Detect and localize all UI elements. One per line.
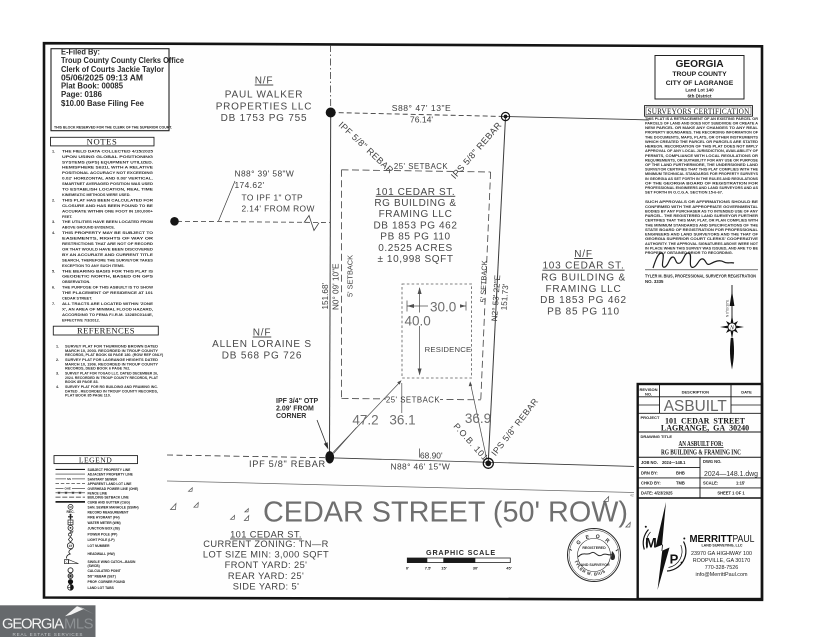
- svg-text:GEORGIA: GEORGIA: [2, 617, 64, 633]
- svg-text:UPON USING GLOBAL POSITIONING: UPON USING GLOBAL POSITIONING: [62, 155, 153, 159]
- svg-text:REGISTERED: REGISTERED: [582, 546, 606, 550]
- svg-text:15': 15': [441, 566, 446, 571]
- svg-text:6th District: 6th District: [688, 93, 712, 98]
- svg-text:DESCRIPTION: DESCRIPTION: [682, 390, 709, 395]
- svg-text:76.14': 76.14': [410, 115, 434, 125]
- svg-text:4.: 4.: [52, 231, 55, 235]
- svg-text:ALL TRACTS ARE LOCATED WITHIN: ALL TRACTS ARE LOCATED WITHIN 'ZONE: [62, 302, 154, 306]
- svg-text:ALLEN LORAINE S: ALLEN LORAINE S: [212, 339, 312, 350]
- svg-text:PLAT BOOK 85 PAGE 110.: PLAT BOOK 85 PAGE 110.: [65, 394, 111, 398]
- svg-text:7.5': 7.5': [425, 566, 432, 571]
- svg-text:151.68': 151.68': [321, 282, 330, 309]
- svg-text:DATE: 4/23/2025: DATE: 4/23/2025: [641, 491, 673, 496]
- svg-text:OVERHEAD POWER LINE (OHE): OVERHEAD POWER LINE (OHE): [88, 487, 139, 491]
- svg-text:68.90': 68.90': [420, 450, 443, 460]
- svg-text:SUBJECT PROPERTY LINE: SUBJECT PROPERTY LINE: [88, 468, 132, 472]
- svg-text:EFFECTIVE 7/3/2012.: EFFECTIVE 7/3/2012.: [62, 318, 100, 322]
- svg-text:HEADWALL (HW): HEADWALL (HW): [88, 552, 115, 556]
- svg-text:± 10,998 SQFT: ± 10,998 SQFT: [377, 254, 453, 265]
- svg-text:OBSERVATION.: OBSERVATION.: [62, 280, 90, 284]
- svg-text:30': 30': [473, 566, 478, 571]
- svg-text:THIS PROPERTY MAY BE SUBJECT T: THIS PROPERTY MAY BE SUBJECT TO: [62, 231, 153, 235]
- svg-text:ROOPVILLE, GA 30170: ROOPVILLE, GA 30170: [693, 558, 751, 564]
- svg-text:TO IPF 1" OTP: TO IPF 1" OTP: [242, 193, 304, 203]
- svg-text:FRONT YARD: 25': FRONT YARD: 25': [225, 560, 308, 570]
- svg-text:PROJECT: PROJECT: [641, 415, 660, 420]
- svg-text:ACCORDING TO FEMA F.I.R.M. 132: ACCORDING TO FEMA F.I.R.M. 13285C0144E,: [62, 313, 153, 317]
- svg-text:CHKD BY:: CHKD BY:: [641, 481, 661, 486]
- svg-text:DB 1853 PG 462: DB 1853 PG 462: [540, 295, 627, 306]
- svg-text:SIDE YARD: 5': SIDE YARD: 5': [233, 582, 300, 592]
- svg-text:30.0: 30.0: [430, 300, 456, 315]
- svg-text:RESIDENCE: RESIDENCE: [425, 345, 472, 354]
- svg-text:RECORDS, DEED BOOK 6 PAGE 762.: RECORDS, DEED BOOK 6 PAGE 762.: [65, 367, 130, 371]
- svg-text:Land Lot 140: Land Lot 140: [685, 88, 714, 93]
- svg-text:0': 0': [406, 566, 409, 571]
- svg-text:ASBUILT: ASBUILT: [664, 398, 728, 415]
- svg-text:REAR YARD: 25': REAR YARD: 25': [228, 571, 304, 581]
- svg-text:4.: 4.: [56, 385, 59, 389]
- svg-text:LEGEND: LEGEND: [79, 455, 112, 464]
- svg-text:174.62': 174.62': [235, 180, 265, 190]
- svg-text:2.09' FROM: 2.09' FROM: [276, 406, 314, 413]
- svg-text:ADJACENT PROPERTY LINE: ADJACENT PROPERTY LINE: [88, 473, 134, 477]
- svg-text:TMB: TMB: [676, 481, 685, 486]
- svg-text:JOB NO.: JOB NO.: [641, 460, 658, 465]
- svg-text:$10.00 Base Filing Fee: $10.00 Base Filing Fee: [61, 99, 145, 108]
- svg-text:N/F: N/F: [253, 328, 272, 339]
- svg-text:2.: 2.: [56, 358, 59, 362]
- svg-text:RECORDS, PLAT BOOK 68 PAGE 180: RECORDS, PLAT BOOK 68 PAGE 180. (ROW REF…: [65, 353, 164, 357]
- svg-text:0.2525 ACRES: 0.2525 ACRES: [378, 243, 452, 254]
- svg-text:DATE: DATE: [741, 390, 752, 395]
- svg-text:CITY OF LAGRANGE: CITY OF LAGRANGE: [666, 80, 734, 87]
- svg-text:DB 568 PG 726: DB 568 PG 726: [222, 350, 302, 361]
- svg-text:CEDAR STREET (50' ROW): CEDAR STREET (50' ROW): [263, 497, 628, 529]
- svg-text:N88° 46' 15"W: N88° 46' 15"W: [391, 462, 451, 472]
- svg-text:770-328-7526: 770-328-7526: [705, 565, 739, 571]
- svg-text:P: P: [670, 552, 679, 567]
- svg-text:ABOVE GROUND EVIDENCE.: ABOVE GROUND EVIDENCE.: [62, 226, 115, 230]
- svg-text:1:15': 1:15': [736, 481, 745, 486]
- svg-text:2.14' FROM ROW: 2.14' FROM ROW: [242, 204, 315, 214]
- svg-text:45': 45': [506, 566, 511, 571]
- svg-text:DRAWING TITLE: DRAWING TITLE: [641, 434, 673, 439]
- svg-text:0.02' HORIZONTAL AND 0.08' VER: 0.02' HORIZONTAL AND 0.08' VERTICAL.: [62, 177, 153, 181]
- svg-text:RECORD MEASUREMENT: RECORD MEASUREMENT: [88, 510, 129, 514]
- svg-text:DWG NO.: DWG NO.: [703, 459, 721, 464]
- svg-text:PB 85 PG 110: PB 85 PG 110: [547, 307, 620, 318]
- svg-text:(SWCB): (SWCB): [88, 564, 100, 568]
- svg-text:25' SETBACK: 25' SETBACK: [386, 396, 441, 405]
- svg-text:S88° 47' 13"E: S88° 47' 13"E: [392, 103, 452, 113]
- svg-text:36.9: 36.9: [465, 411, 491, 426]
- svg-text:CURRENT ZONING: TN—R: CURRENT ZONING: TN—R: [203, 539, 328, 549]
- svg-text:SYSTEMS (GPS) EQUIPMENT UTILIZ: SYSTEMS (GPS) EQUIPMENT UTILIZED.: [62, 160, 153, 164]
- svg-text:CLOSURE AND HAS BEEN FOUND TO: CLOSURE AND HAS BEEN FOUND TO BE: [62, 204, 154, 208]
- svg-text:101 CEDAR ST.: 101 CEDAR ST.: [376, 187, 456, 198]
- svg-text:FIRE HYDRANT (FH): FIRE HYDRANT (FH): [88, 516, 120, 520]
- svg-text:47.2: 47.2: [352, 413, 378, 428]
- svg-text:IPF 3/4" OTP: IPF 3/4" OTP: [276, 398, 319, 405]
- svg-text:SS: SS: [67, 477, 71, 481]
- svg-text:PROP. CORNER FOUND: PROP. CORNER FOUND: [88, 580, 126, 584]
- svg-text:POSITIONAL ACCURACY NOT EXCEED: POSITIONAL ACCURACY NOT EXCEEDING: [62, 171, 153, 175]
- svg-text:N/F: N/F: [255, 76, 274, 87]
- svg-text:N88° 39' 58"W: N88° 39' 58"W: [235, 169, 295, 179]
- svg-text:BUILDING SETBACK LINE: BUILDING SETBACK LINE: [88, 496, 130, 500]
- svg-text:REAL ESTATE SERVICES: REAL ESTATE SERVICES: [13, 632, 83, 637]
- svg-text:SHEET 1 OF 1: SHEET 1 OF 1: [717, 491, 745, 496]
- svg-text:OR THAT WOULD HAVE BEEN DISCOV: OR THAT WOULD HAVE BEEN DISCOVERED: [62, 248, 153, 252]
- svg-text:MLS: MLS: [64, 617, 94, 633]
- svg-text:SCALE:: SCALE:: [703, 481, 718, 486]
- svg-text:EXCEPTION TO ANY SUCH ITEMS.: EXCEPTION TO ANY SUCH ITEMS.: [62, 264, 125, 268]
- svg-text:THE BEARING BASIS FOR THIS PLA: THE BEARING BASIS FOR THIS PLAT IS: [62, 269, 154, 273]
- svg-text:FRAMING LLC: FRAMING LLC: [379, 209, 453, 220]
- svg-text:SANITARY SEWER: SANITARY SEWER: [88, 477, 118, 481]
- svg-text:BHB: BHB: [676, 470, 685, 475]
- svg-text:IPF 5/8" REBAR: IPF 5/8" REBAR: [249, 459, 326, 469]
- svg-text:RESTRICTIONS THAT ARE NOT OF R: RESTRICTIONS THAT ARE NOT OF RECORD: [62, 242, 153, 246]
- svg-text:DB 1753 PG 755: DB 1753 PG 755: [221, 113, 308, 124]
- svg-text:LOT NUMBER: LOT NUMBER: [88, 544, 111, 548]
- svg-text:N0° 09' 10"E: N0° 09' 10"E: [332, 263, 341, 310]
- svg-text:2024—148.1.dwg: 2024—148.1.dwg: [704, 471, 758, 478]
- svg-text:THIS PLAT HAS BEEN CALCULATED: THIS PLAT HAS BEEN CALCULATED FOR: [62, 198, 153, 202]
- svg-text:RG BUILDING &: RG BUILDING &: [541, 272, 626, 283]
- svg-text:103 CEDAR ST.: 103 CEDAR ST.: [542, 261, 624, 272]
- svg-text:LAND SURVEYOR: LAND SURVEYOR: [578, 563, 609, 567]
- svg-text:LAND SURVEYING, LLC: LAND SURVEYING, LLC: [701, 543, 742, 547]
- svg-text:5/8" REBAR (SET): 5/8" REBAR (SET): [88, 575, 116, 579]
- svg-text:FEET.: FEET.: [62, 215, 72, 219]
- svg-text:POWER POLE (PP): POWER POLE (PP): [88, 532, 118, 536]
- svg-text:THIS BLOCK RESERVED FOR THE CL: THIS BLOCK RESERVED FOR THE CLERK OF THE…: [54, 126, 172, 130]
- svg-text:THE PLACEMENT OF RESIDENCE AT: THE PLACEMENT OF RESIDENCE AT 101: [62, 291, 153, 295]
- svg-text:5' SETBACK: 5' SETBACK: [346, 255, 355, 297]
- svg-text:SURVEYORS CERTIFICATION: SURVEYORS CERTIFICATION: [648, 107, 750, 116]
- svg-text:EASEMENTS, RIGHTS OF WAY OR: EASEMENTS, RIGHTS OF WAY OR: [62, 237, 153, 241]
- svg-text:ACCURATE WITHIN ONE FOOT IN 10: ACCURATE WITHIN ONE FOOT IN 100,000+: [62, 209, 154, 213]
- svg-text:N/F: N/F: [574, 249, 593, 260]
- svg-text:REFERENCES: REFERENCES: [77, 326, 135, 336]
- svg-text:REC.: REC.: [66, 510, 74, 514]
- svg-text:1.: 1.: [56, 345, 59, 349]
- svg-text:3.: 3.: [56, 372, 59, 376]
- svg-text:PAUL WALKER: PAUL WALKER: [225, 90, 303, 101]
- svg-text:1.: 1.: [52, 149, 55, 153]
- svg-text:PB 85 PG 110: PB 85 PG 110: [380, 232, 450, 243]
- svg-text:SMARTNET AVERAGED POSITION WAS: SMARTNET AVERAGED POSITION WAS USED: [62, 182, 153, 186]
- svg-text:TROUP COUNTY: TROUP COUNTY: [672, 71, 727, 78]
- svg-text:CURB AND GUTTER (C&G): CURB AND GUTTER (C&G): [88, 500, 130, 504]
- svg-text:NOTES: NOTES: [87, 137, 118, 147]
- svg-text:BOOK 85 PAGE 83.: BOOK 85 PAGE 83.: [65, 380, 99, 384]
- svg-text:BY AN ACCURATE AND CURRENT TIT: BY AN ACCURATE AND CURRENT TITLE: [62, 253, 154, 257]
- svg-text:KINEMEATIC METHODS WERE USED.: KINEMEATIC METHODS WERE USED.: [62, 193, 131, 197]
- svg-text:APPARENT LAND LOT LINE: APPARENT LAND LOT LINE: [88, 482, 133, 486]
- svg-text:TO ESTABLISH LOCATION, REAL TI: TO ESTABLISH LOCATION, REAL TIME: [62, 188, 154, 192]
- svg-text:DB 1853 PG 462: DB 1853 PG 462: [373, 220, 457, 231]
- svg-text:DRN BY:: DRN BY:: [641, 470, 658, 475]
- svg-text:5' SETBACK: 5' SETBACK: [479, 260, 489, 302]
- svg-text:##: ##: [69, 544, 73, 548]
- svg-text:40.0: 40.0: [405, 314, 431, 329]
- svg-text:CORNER: CORNER: [276, 413, 306, 420]
- svg-text:info@MerrittPaul.com: info@MerrittPaul.com: [696, 572, 748, 578]
- svg-text:SET FORTH IN O.C.G.A. SECTION: SET FORTH IN O.C.G.A. SECTION 15-6-67.: [645, 190, 723, 195]
- svg-text:SAN. SEWER MANHOLE (SSMH): SAN. SEWER MANHOLE (SSMH): [88, 505, 139, 509]
- svg-text:CEDAR STREET.: CEDAR STREET.: [62, 297, 92, 301]
- svg-text:SEARCH, THEREFORE THE SURVEYOR: SEARCH, THEREFORE THE SURVEYOR TAKES: [62, 258, 153, 262]
- svg-text:25' SETBACK: 25' SETBACK: [394, 162, 449, 171]
- svg-text:FRAMING LLC: FRAMING LLC: [545, 284, 621, 295]
- svg-text:THE UTILITIES HAVE BEEN LOCATE: THE UTILITIES HAVE BEEN LOCATED FROM: [62, 220, 153, 224]
- svg-text:THE PURPOSE OF THIS ASBUILT IS: THE PURPOSE OF THIS ASBUILT IS TO SHOW: [62, 286, 153, 290]
- svg-text:M: M: [645, 535, 657, 551]
- svg-text:LOT SIZE MIN: 3,000 SQFT: LOT SIZE MIN: 3,000 SQFT: [203, 550, 329, 560]
- svg-text:RG BUILDING & FRAMING INC: RG BUILDING & FRAMING INC: [661, 448, 741, 457]
- svg-text:X', AN AREA OF MINIMAL FLOOD H: X', AN AREA OF MINIMAL FLOOD HAZARD,: [62, 307, 153, 311]
- svg-text:THE FIELD DATA COLLECTED 4/15/: THE FIELD DATA COLLECTED 4/15/2025: [62, 149, 153, 153]
- svg-text:JUNCTION BOX (JB): JUNCTION BOX (JB): [88, 526, 120, 530]
- svg-text:N 0°09'10"E: N 0°09'10"E: [726, 300, 730, 317]
- svg-text:6.: 6.: [52, 286, 55, 290]
- svg-text:3.: 3.: [52, 220, 55, 224]
- svg-text:7.: 7.: [52, 302, 55, 306]
- svg-text:LAND LOT TABS: LAND LOT TABS: [88, 586, 115, 590]
- svg-text:HEMISPHERE S631L WITH A RELATI: HEMISPHERE S631L WITH A RELATIVE: [62, 166, 154, 170]
- svg-text:LIGHT POLE (LP): LIGHT POLE (LP): [88, 538, 115, 542]
- svg-text:151.73': 151.73': [500, 283, 511, 311]
- svg-text:42: 42: [630, 494, 634, 498]
- svg-text:NO. 3335: NO. 3335: [645, 279, 664, 284]
- svg-text:PROPERTIES LLC: PROPERTIES LLC: [216, 102, 313, 113]
- svg-text:GEORGIA: GEORGIA: [675, 59, 724, 70]
- svg-text:CALCULATED POINT: CALCULATED POINT: [88, 569, 121, 573]
- svg-text:RG BUILDING &: RG BUILDING &: [374, 198, 456, 209]
- svg-text:23970 GA HIGHWAY 100: 23970 GA HIGHWAY 100: [691, 551, 752, 557]
- svg-text:OHE: OHE: [65, 487, 71, 491]
- svg-text:36.1: 36.1: [389, 413, 415, 428]
- svg-text:5.: 5.: [52, 269, 55, 273]
- svg-text:TYLER M. BIUS, PROFESSIONAL SU: TYLER M. BIUS, PROFESSIONAL SURVEYOR REG…: [645, 273, 756, 278]
- svg-text:GRAPHIC SCALE: GRAPHIC SCALE: [426, 548, 496, 557]
- svg-text:2.: 2.: [52, 198, 55, 202]
- svg-text:2024—148.1: 2024—148.1: [662, 460, 686, 465]
- svg-text:WATER METER (WM): WATER METER (WM): [88, 521, 121, 525]
- svg-text:NO.: NO.: [645, 392, 652, 397]
- svg-text:GEODETIC NORTH, BASED ON GPS: GEODETIC NORTH, BASED ON GPS: [62, 275, 154, 279]
- svg-text:LAGRANGE, GA 30240: LAGRANGE, GA 30240: [661, 424, 749, 433]
